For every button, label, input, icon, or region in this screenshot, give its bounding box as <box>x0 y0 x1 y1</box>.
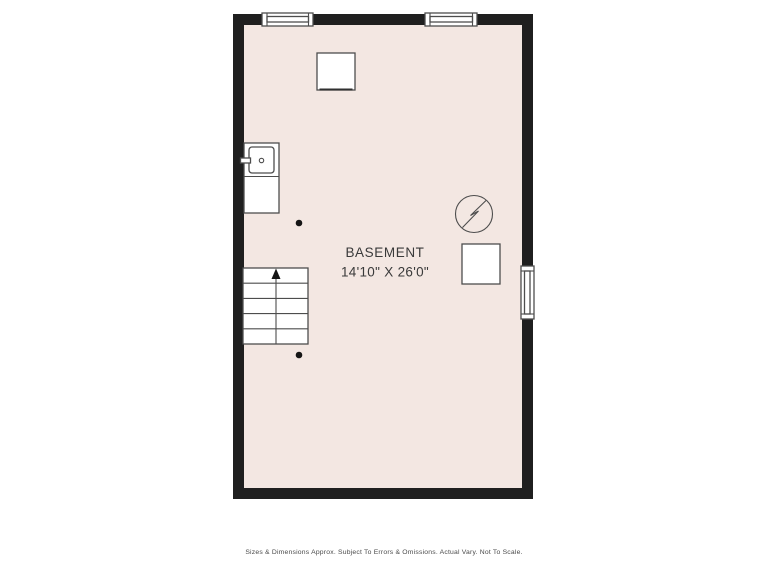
staircase-up-icon <box>243 268 308 344</box>
window-top-right-icon <box>425 13 477 26</box>
appliance-square-icon <box>317 53 355 90</box>
floor-plan: BASEMENT 14'10" X 26'0" <box>0 0 768 576</box>
window-right-wall-icon <box>521 266 534 319</box>
support-post-upper-icon <box>296 220 303 227</box>
disclaimer-text: Sizes & Dimensions Approx. Subject To Er… <box>0 549 768 557</box>
support-post-lower-icon <box>296 352 303 359</box>
window-top-left-icon <box>262 13 313 26</box>
page: BASEMENT 14'10" X 26'0" Sizes & Dimensio… <box>0 0 768 576</box>
room-dimensions-label: 14'10" X 26'0" <box>341 265 429 280</box>
furnace-square-icon <box>462 244 500 284</box>
laundry-sink-icon <box>241 143 280 213</box>
room-name-label: BASEMENT <box>345 245 424 260</box>
